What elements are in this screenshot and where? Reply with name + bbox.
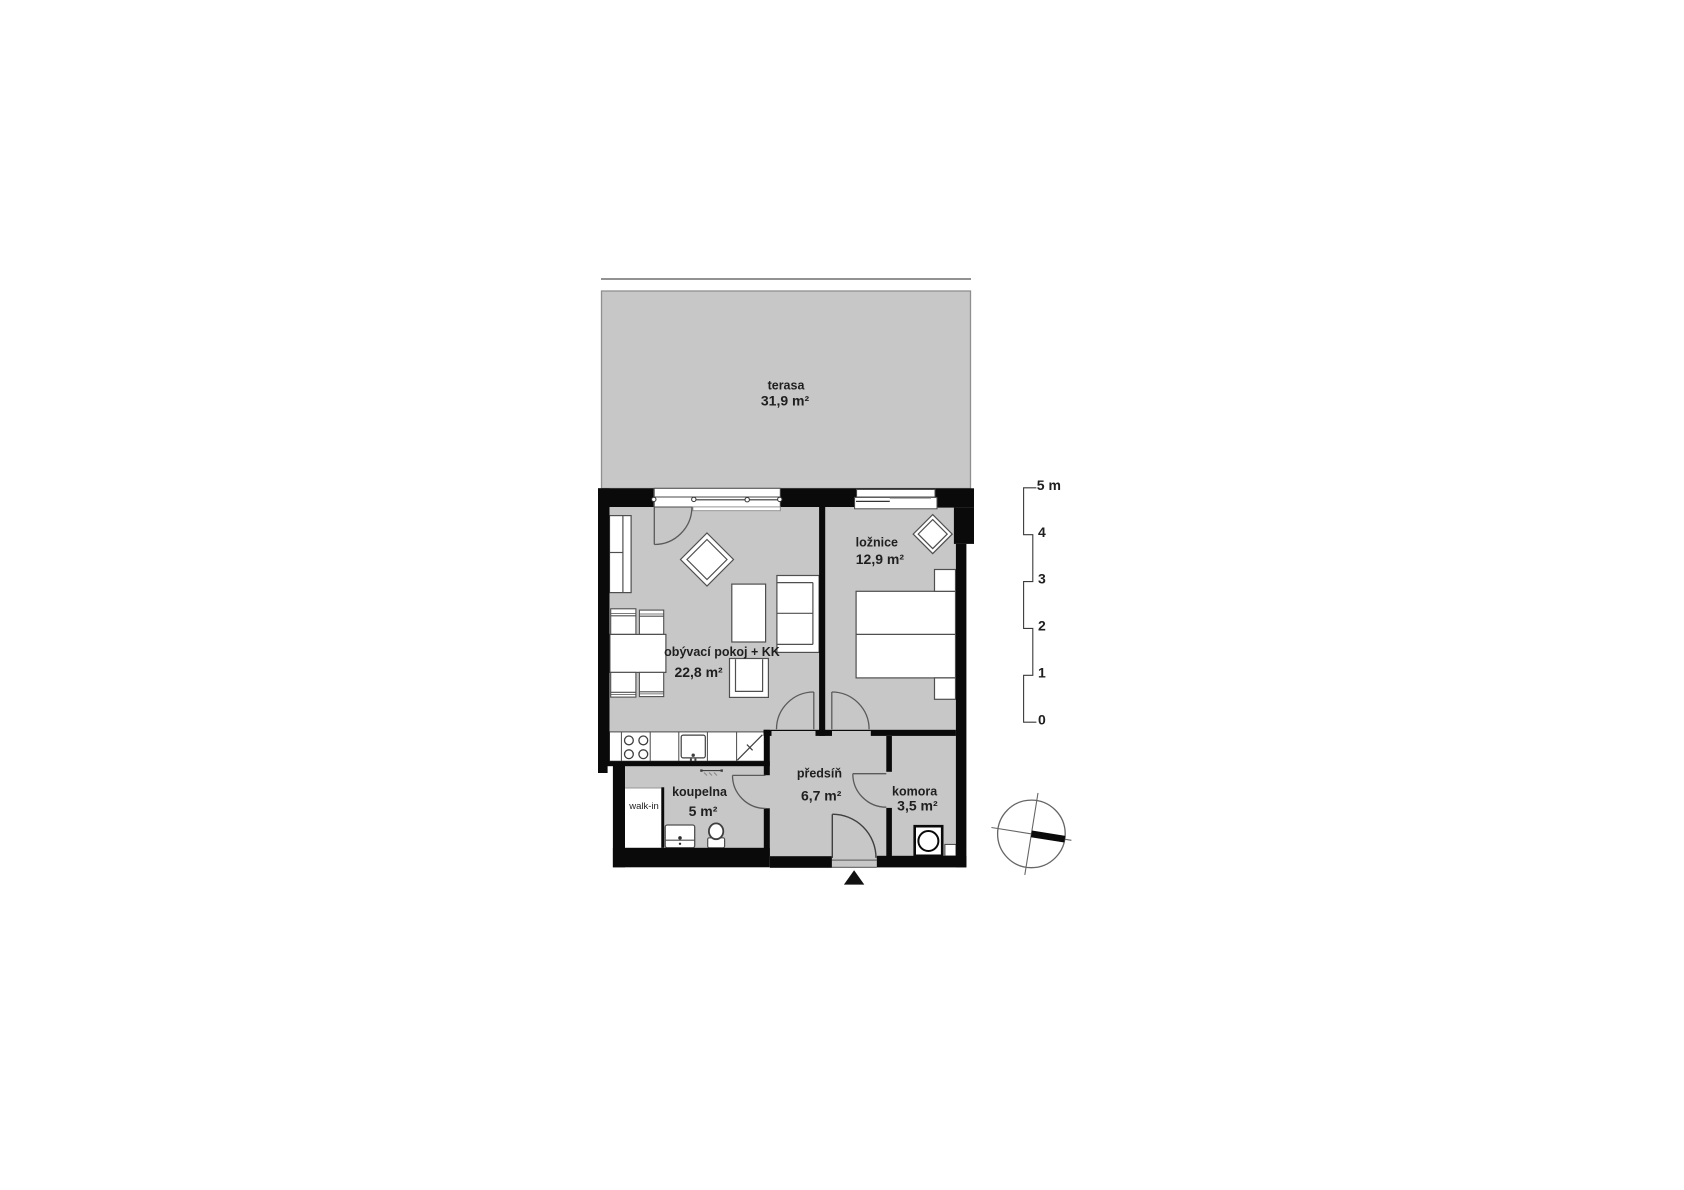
svg-text:koupelna: koupelna <box>672 785 728 799</box>
svg-text:5 m²: 5 m² <box>689 803 718 819</box>
svg-text:walk-in: walk-in <box>628 801 659 812</box>
svg-text:3,5 m²: 3,5 m² <box>897 798 938 814</box>
svg-text:3: 3 <box>1038 571 1046 587</box>
svg-text:předsíň: předsíň <box>797 767 842 781</box>
svg-text:31,9 m²: 31,9 m² <box>761 392 810 408</box>
svg-text:22,8 m²: 22,8 m² <box>674 664 723 680</box>
svg-text:terasa: terasa <box>768 379 806 393</box>
svg-text:0: 0 <box>1038 711 1046 727</box>
svg-text:4: 4 <box>1038 524 1046 540</box>
svg-text:1: 1 <box>1038 664 1046 680</box>
svg-text:6,7 m²: 6,7 m² <box>801 788 842 804</box>
svg-text:obývací pokoj + KK: obývací pokoj + KK <box>664 645 780 659</box>
svg-text:12,9 m²: 12,9 m² <box>856 551 905 567</box>
svg-text:5 m: 5 m <box>1037 477 1061 493</box>
svg-text:komora: komora <box>892 785 938 799</box>
svg-text:ložnice: ložnice <box>856 536 898 550</box>
svg-text:2: 2 <box>1038 618 1046 634</box>
